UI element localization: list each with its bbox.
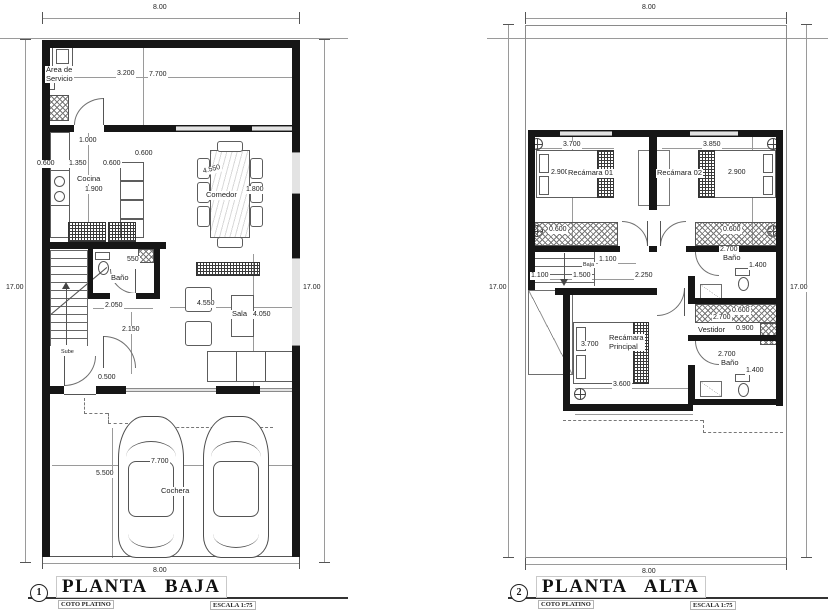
dim-line [25, 40, 26, 563]
bed-pillow [539, 154, 549, 173]
wall-segment [42, 40, 50, 557]
dim-tick [319, 39, 330, 40]
room-label: Sala [231, 310, 248, 319]
plan-title: PLANTA ALTA [536, 576, 706, 598]
window [292, 152, 300, 194]
dim-label: 3.700 [580, 341, 600, 349]
kitchen-bar [68, 222, 106, 242]
room-label: Recámara Principal [608, 334, 645, 351]
wall-segment [528, 130, 535, 248]
blueprint-sheet: 8.00 17.00 17.00 8.00 Área de Servicio 3… [0, 0, 828, 615]
dim-tick [786, 12, 787, 24]
dim-label: 0.500 [97, 374, 117, 382]
dim-tick [42, 557, 43, 569]
bed-pillow [763, 176, 773, 195]
wall-segment [42, 242, 166, 249]
dim-label: 1.000 [78, 137, 98, 145]
dim-label: 2.050 [104, 302, 124, 310]
door-gap [110, 293, 136, 299]
car-rear-window [128, 534, 174, 548]
dim-label: 550 [126, 256, 140, 264]
door-leaf [647, 221, 648, 246]
roof-dashed-line [108, 413, 109, 423]
wall-segment [688, 399, 783, 405]
roof-edge-line [575, 414, 693, 415]
scale-tag: ESCALA 1:75 [210, 601, 256, 610]
car-windshield [211, 441, 261, 457]
wall-segment [688, 298, 783, 304]
cabinet [120, 181, 144, 200]
dim-label: 3.700 [562, 141, 582, 149]
bed-pillow [539, 176, 549, 195]
cabinet [120, 200, 144, 219]
washer-drum-icon [56, 49, 69, 64]
dim-line [324, 40, 325, 563]
toilet-tank [735, 374, 750, 382]
wall-segment [528, 246, 620, 252]
dim-label: 8.00 [152, 4, 168, 12]
dim-line [525, 564, 787, 565]
door-leaf [660, 221, 661, 246]
cabinet [120, 162, 144, 181]
chair [217, 237, 243, 248]
burner-icon [54, 176, 65, 187]
door-leaf [684, 288, 685, 316]
dim-label: 17.00 [789, 284, 809, 292]
dim-label: 0.600 [548, 226, 568, 234]
stair-arrow-head [560, 279, 568, 286]
door-arc [64, 356, 96, 386]
wall-segment [688, 335, 783, 341]
wall-segment [563, 404, 693, 411]
room-label: Comedor [205, 191, 238, 200]
dim-label: 3.850 [702, 141, 722, 149]
dim-line [508, 25, 509, 558]
dim-tick [20, 39, 31, 40]
light-fixture-icon [574, 388, 586, 400]
door-leaf [103, 336, 104, 368]
toilet-bowl [738, 277, 749, 291]
dim-label: 7.700 [148, 71, 168, 79]
room-label: Área de Servicio [45, 66, 74, 83]
toilet-tank [95, 252, 110, 260]
closet-hatch [529, 222, 618, 246]
scale-tag: ESCALA 1:75 [690, 601, 736, 610]
dim-tick [525, 12, 526, 24]
dim-label: 0.600 [36, 160, 56, 168]
room-label: Baño [720, 359, 740, 368]
room-label: Baño [722, 254, 742, 263]
chair [197, 206, 210, 227]
dim-label: 5.500 [95, 470, 115, 478]
extension-line [143, 48, 144, 125]
door-leaf [64, 356, 65, 386]
room-label: Baja [582, 262, 595, 268]
sheet-number-circle: 2 [510, 584, 528, 602]
dim-tick [503, 24, 514, 25]
door-gap [688, 252, 695, 276]
bed-blanket-hatch [633, 322, 649, 384]
dim-label: 0.600 [722, 226, 742, 234]
roof-dashed-line [84, 398, 85, 414]
dim-label: 1.900 [84, 186, 104, 194]
dim-tick [786, 558, 787, 570]
dim-tick [525, 558, 526, 570]
chair [217, 141, 243, 152]
firm-tag: COTO PLATINO [538, 600, 594, 609]
dim-label: 0.600 [731, 307, 751, 315]
dim-tick [319, 562, 330, 563]
dim-label: 3.600 [612, 381, 632, 389]
dim-line [525, 18, 787, 19]
dim-label: 2.250 [634, 272, 654, 280]
shower [700, 381, 722, 397]
dim-label: 1.400 [748, 262, 768, 270]
door-leaf [135, 269, 136, 294]
car-roof [213, 461, 259, 517]
wall-segment [154, 242, 160, 299]
dim-label: 8.00 [641, 568, 657, 576]
dim-line [42, 18, 300, 19]
roof-dashed-line [703, 432, 783, 433]
dim-label: 0.600 [134, 150, 154, 158]
dim-line [112, 428, 113, 558]
bed-pillow [763, 154, 773, 173]
plan-title: PLANTA BAJA [56, 576, 227, 598]
dim-tick [801, 557, 812, 558]
window [292, 258, 300, 346]
dim-label: 4.550 [196, 300, 216, 308]
dim-tick [299, 557, 300, 569]
door-arc [74, 98, 104, 125]
kitchen-bar [108, 222, 136, 242]
dim-label: 1.100 [530, 272, 550, 280]
wall-segment [776, 130, 783, 406]
dim-label: 17.00 [488, 284, 508, 292]
wall-segment [528, 246, 535, 290]
wall-segment [96, 386, 126, 394]
car [203, 416, 269, 558]
roof-dashed-line [108, 423, 128, 424]
dim-label: 1.500 [572, 272, 592, 280]
dim-label: 0.600 [102, 160, 122, 168]
dim-line [62, 77, 293, 78]
dim-tick [20, 562, 31, 563]
dim-tick [503, 557, 514, 558]
dim-label: 0.900 [735, 325, 755, 333]
dim-label: 1.800 [245, 186, 265, 194]
door-gap [74, 125, 104, 132]
dim-label: 17.00 [302, 284, 322, 292]
dim-tick [801, 24, 812, 25]
dim-tick [42, 12, 43, 24]
sofa-seam [236, 352, 237, 381]
sofa-seam [265, 352, 266, 381]
window [176, 126, 230, 131]
dim-line [575, 388, 691, 389]
wall-segment [216, 386, 260, 394]
door-gap [688, 341, 695, 365]
stair-arrow-head [62, 282, 70, 289]
room-label: Sube [60, 349, 75, 355]
extension-line [0, 38, 348, 39]
dim-label: 1.400 [745, 367, 765, 375]
room-label: Cocina [76, 175, 101, 184]
car-rear-window [213, 534, 259, 548]
wall-segment [42, 386, 64, 394]
dim-label: 7.700 [150, 458, 170, 466]
wall-segment [88, 249, 93, 299]
dim-label: 2.150 [121, 326, 141, 334]
roof-dashed-line [84, 413, 108, 414]
dim-tick [299, 12, 300, 24]
dim-label: 2.900 [727, 169, 747, 177]
dim-label: 4.050 [252, 311, 272, 319]
roof-dashed-line [563, 420, 703, 421]
chair [250, 158, 263, 179]
bed-pillow [576, 355, 586, 379]
car-windshield [126, 441, 176, 457]
burner-icon [54, 191, 65, 202]
threshold-line [64, 394, 96, 395]
window [560, 131, 612, 136]
room-label: Cochera [160, 487, 190, 496]
wall-segment [42, 40, 300, 48]
firm-tag: COTO PLATINO [58, 600, 114, 609]
door-leaf [103, 98, 104, 125]
dim-label: 1.350 [68, 160, 88, 168]
window [690, 131, 738, 136]
chair [250, 206, 263, 227]
room-label: Recámara 02 [656, 169, 703, 178]
window [126, 388, 216, 392]
wall-segment [563, 295, 570, 411]
room-label: Baño [110, 274, 130, 283]
room-label: Vestidor [697, 326, 726, 335]
dim-label: 3.200 [116, 70, 136, 78]
dim-label: 2.700 [712, 314, 732, 322]
wall-segment [555, 288, 657, 295]
window [260, 388, 292, 392]
wall-segment [649, 246, 657, 252]
dim-label: 17.00 [5, 284, 25, 292]
sheet-number-circle: 1 [30, 584, 48, 602]
window [252, 126, 292, 131]
room-label: Recámara 01 [567, 169, 614, 178]
stair-arrow [564, 253, 565, 279]
dim-label: 8.00 [641, 4, 657, 12]
dim-label: 8.00 [152, 567, 168, 575]
toilet-bowl [738, 383, 749, 397]
armchair [185, 321, 212, 346]
sofa [207, 351, 295, 382]
dim-line [42, 563, 300, 564]
tv-console [196, 262, 260, 276]
stair-arrow [66, 289, 67, 345]
bath-sink [138, 249, 154, 263]
dim-label: 1.100 [598, 256, 618, 264]
